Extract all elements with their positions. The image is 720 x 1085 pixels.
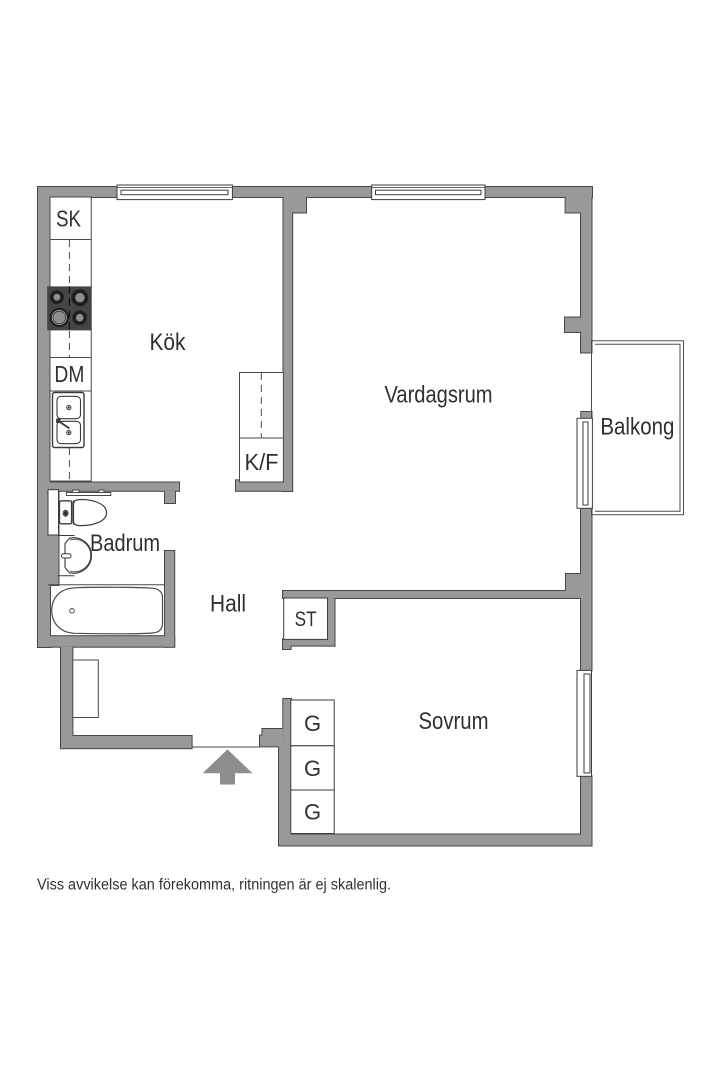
svg-text:G: G: [304, 800, 321, 825]
svg-text:Viss avvikelse kan förekomma,: Viss avvikelse kan förekomma, ritningen …: [37, 877, 391, 894]
svg-text:DM: DM: [54, 361, 84, 387]
svg-text:G: G: [304, 711, 321, 736]
svg-text:Balkong: Balkong: [600, 414, 674, 441]
svg-text:SK: SK: [56, 206, 82, 232]
svg-text:K/F: K/F: [245, 449, 279, 475]
svg-text:G: G: [304, 756, 321, 781]
svg-text:Kök: Kök: [150, 329, 187, 356]
svg-text:Hall: Hall: [210, 591, 246, 618]
svg-text:Vardagsrum: Vardagsrum: [385, 382, 493, 409]
svg-text:ST: ST: [295, 608, 317, 631]
svg-text:Badrum: Badrum: [90, 530, 160, 557]
svg-text:Sovrum: Sovrum: [419, 708, 489, 735]
